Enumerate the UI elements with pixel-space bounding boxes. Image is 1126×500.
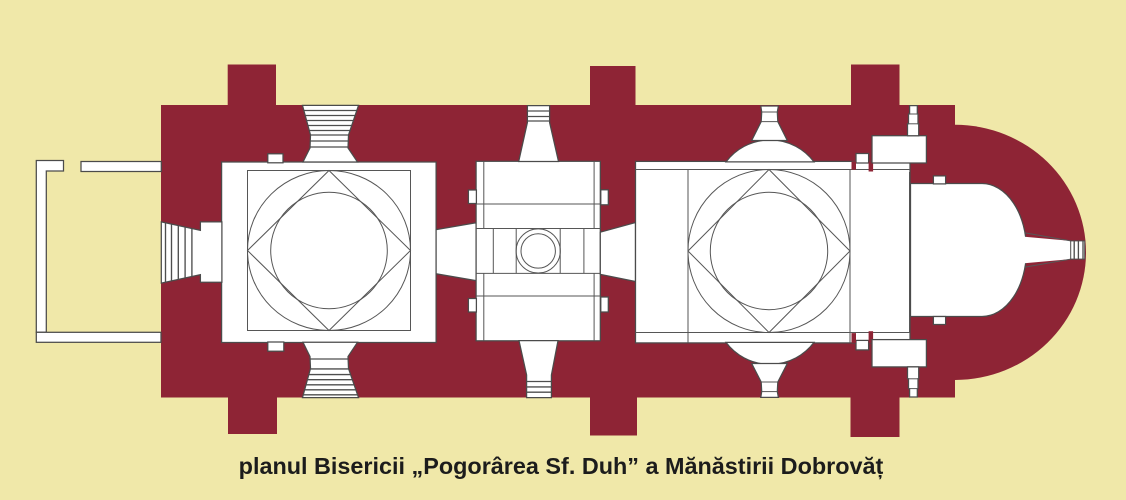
svg-text:planul Bisericii „Pogorârea Sf: planul Bisericii „Pogorârea Sf. Duh” a M… [239,453,884,480]
